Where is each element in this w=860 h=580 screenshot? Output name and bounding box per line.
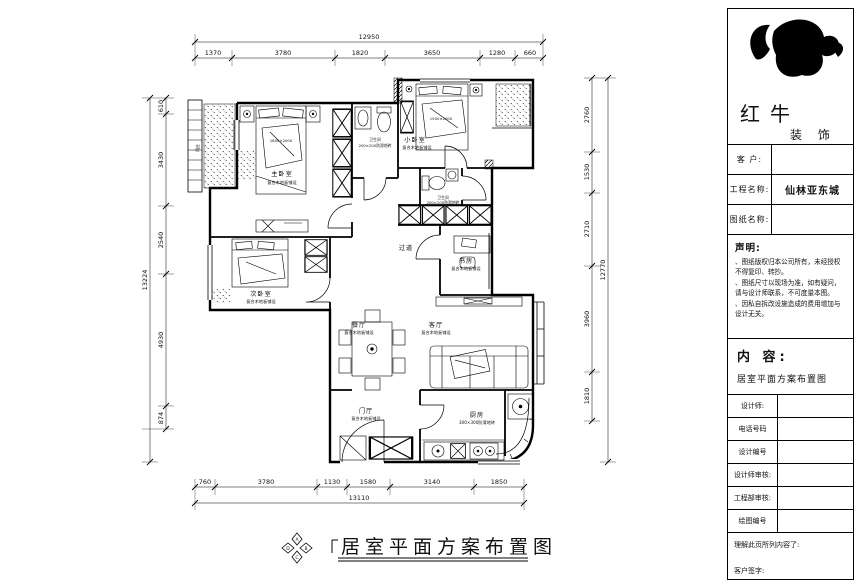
title-block: 红牛 装 饰 客 户: 工程名称: 仙林亚东城 图纸名称: 声明: 图纸版权归本… bbox=[727, 8, 854, 580]
field-project-name: 工程名称: 仙林亚东城 bbox=[728, 175, 853, 205]
svg-text:1800×2000: 1800×2000 bbox=[270, 138, 293, 143]
content-section: 内 容: 居室平面方案布置图 bbox=[728, 339, 853, 395]
svg-text:1130: 1130 bbox=[324, 478, 341, 486]
bull-logo-icon: 红牛 装 饰 bbox=[728, 9, 852, 143]
label-bath1: 卫生间 bbox=[369, 137, 381, 142]
svg-text:3780: 3780 bbox=[275, 49, 292, 57]
svg-text:复合木地板铺设: 复合木地板铺设 bbox=[246, 298, 276, 305]
svg-text:300×300防滑地砖: 300×300防滑地砖 bbox=[459, 419, 495, 426]
sign-row-designer-check: 设计师审核: bbox=[728, 464, 853, 487]
label-study: 书房 bbox=[459, 257, 473, 265]
svg-text:复合木地板铺设: 复合木地板铺设 bbox=[267, 179, 297, 186]
hall-closets bbox=[399, 206, 491, 224]
statement-notes: 声明: 图纸版权归本公司所有，未经授权不得复印、转抄。 图纸尺寸以现场为准，如有… bbox=[728, 235, 853, 339]
svg-text:D: D bbox=[286, 546, 290, 552]
sign-row-designer: 设计师: bbox=[728, 395, 853, 418]
svg-text:复合木地板铺设: 复合木地板铺设 bbox=[421, 329, 451, 336]
svg-text:13110: 13110 bbox=[349, 494, 370, 502]
statement-item: 图纸尺寸以现场为准，如有疑问，请与设计师联系，不可度量本图。 bbox=[735, 279, 846, 298]
statement-item: 因私自拆改设施造成的费用增加与设计无关。 bbox=[735, 300, 846, 319]
label-kitchen: 厨房 bbox=[470, 411, 484, 419]
svg-text:复合木地板铺设: 复合木地板铺设 bbox=[402, 144, 432, 151]
label-living: 客厅 bbox=[429, 321, 443, 329]
svg-text:2710: 2710 bbox=[583, 221, 591, 238]
svg-text:1370: 1370 bbox=[205, 49, 222, 57]
label-small: 小卧室 bbox=[404, 136, 426, 144]
svg-text:760: 760 bbox=[199, 478, 211, 486]
svg-text:2540: 2540 bbox=[157, 232, 165, 249]
dining-set bbox=[339, 310, 405, 390]
entry-furniture bbox=[340, 436, 412, 460]
field-client: 客 户: bbox=[728, 145, 853, 175]
brand-name: 红牛 bbox=[740, 102, 800, 126]
svg-text:复合木地板铺设: 复合木地板铺设 bbox=[344, 329, 374, 336]
drawing-title: 居室平面方案布置图 bbox=[737, 372, 844, 385]
svg-text:复合木地板铺设: 复合木地板铺设 bbox=[451, 265, 481, 272]
svg-text:12770: 12770 bbox=[599, 260, 607, 281]
label-balcony: 阳台 bbox=[195, 144, 200, 152]
sign-row-phone: 电话号码 bbox=[728, 418, 853, 441]
company-logo-cell: 红牛 装 饰 bbox=[728, 9, 853, 145]
svg-text:200×200防滑地砖: 200×200防滑地砖 bbox=[359, 143, 392, 148]
field-drawing-name: 图纸名称: bbox=[728, 205, 853, 235]
svg-text:4930: 4930 bbox=[157, 332, 165, 349]
floor-plan-canvas: 主卧室 复合木地板铺设 1800×2000 次卧室 复合木地板铺设 小卧室 复合… bbox=[0, 0, 727, 580]
sign-row-design-no: 设计编号 bbox=[728, 441, 853, 464]
svg-text:3140: 3140 bbox=[424, 478, 441, 486]
living-furniture bbox=[430, 297, 528, 388]
master-bedroom-furniture bbox=[237, 106, 351, 232]
svg-text:874: 874 bbox=[157, 412, 165, 424]
laundry-balcony bbox=[508, 394, 533, 419]
svg-text:200×200防滑地砖: 200×200防滑地砖 bbox=[427, 200, 460, 205]
svg-text:1580: 1580 bbox=[360, 478, 377, 486]
svg-text:1820: 1820 bbox=[352, 49, 369, 57]
svg-text:12950: 12950 bbox=[359, 33, 380, 41]
kitchen-fixtures bbox=[422, 440, 504, 460]
label-master: 主卧室 bbox=[271, 170, 293, 178]
svg-text:1500×2000: 1500×2000 bbox=[430, 116, 453, 121]
label-entry: 门厅 bbox=[359, 407, 373, 415]
svg-text:1850: 1850 bbox=[491, 478, 508, 486]
svg-text:13224: 13224 bbox=[141, 270, 149, 291]
svg-text:1810: 1810 bbox=[583, 388, 591, 405]
svg-text:660: 660 bbox=[524, 49, 536, 57]
sheet-caption: 居室平面方案布置图 bbox=[332, 536, 557, 561]
label-dining: 餐厅 bbox=[352, 321, 366, 329]
svg-text:B: B bbox=[304, 546, 307, 552]
svg-text:居室平面方案布置图: 居室平面方案布置图 bbox=[341, 536, 557, 558]
svg-text:1530: 1530 bbox=[583, 164, 591, 181]
sign-row-drawing-no: 绘图编号 bbox=[728, 510, 853, 533]
svg-text:3650: 3650 bbox=[424, 49, 441, 57]
label-second: 次卧室 bbox=[250, 290, 272, 298]
bath2-fixtures bbox=[422, 169, 458, 190]
brand-subname: 装 饰 bbox=[790, 128, 836, 142]
compass-icon: A B C D bbox=[282, 533, 312, 563]
svg-text:1280: 1280 bbox=[489, 49, 506, 57]
svg-text:3780: 3780 bbox=[258, 478, 275, 486]
floor-plan-sheet: 主卧室 复合木地板铺设 1800×2000 次卧室 复合木地板铺设 小卧室 复合… bbox=[0, 0, 727, 580]
sign-row-engineering-check: 工程部审核: bbox=[728, 487, 853, 510]
bath1-fixtures bbox=[355, 107, 391, 132]
svg-text:2760: 2760 bbox=[583, 107, 591, 124]
statement-item: 图纸版权归本公司所有，未经授权不得复印、转抄。 bbox=[735, 258, 846, 277]
svg-text:C: C bbox=[295, 555, 298, 561]
footer-signature: 理解此页所列内容了: 客户签字: bbox=[728, 533, 853, 579]
svg-text:复合木地板铺设: 复合木地板铺设 bbox=[351, 415, 381, 422]
svg-text:3960: 3960 bbox=[583, 311, 591, 328]
windows-and-balconies bbox=[188, 77, 544, 465]
svg-text:3430: 3430 bbox=[157, 152, 165, 169]
label-corridor: 过道 bbox=[399, 244, 413, 252]
svg-text:610: 610 bbox=[157, 100, 165, 112]
